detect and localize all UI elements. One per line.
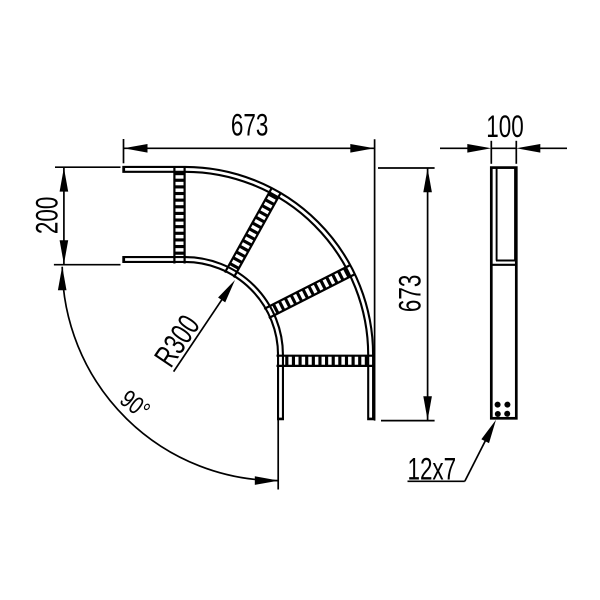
svg-text:673: 673 xyxy=(392,275,428,312)
svg-text:12x7: 12x7 xyxy=(407,451,456,487)
svg-text:673: 673 xyxy=(231,107,268,143)
svg-text:100: 100 xyxy=(486,108,523,144)
svg-text:90°: 90° xyxy=(115,385,155,425)
svg-text:200: 200 xyxy=(29,197,65,234)
svg-text:R300: R300 xyxy=(147,309,207,373)
